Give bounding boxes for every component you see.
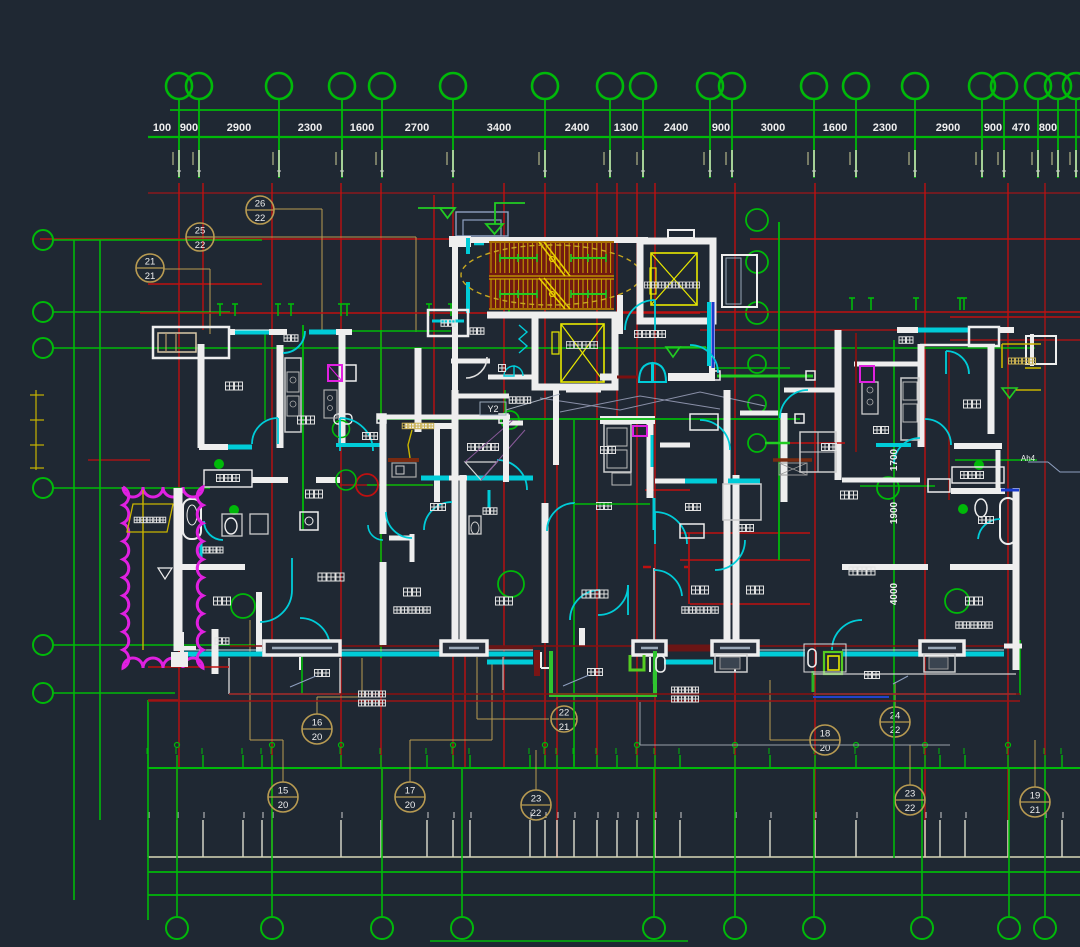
svg-text:22: 22 xyxy=(890,725,901,736)
svg-text:1600: 1600 xyxy=(350,122,374,134)
svg-text:2400: 2400 xyxy=(565,122,589,134)
svg-text:24: 24 xyxy=(890,711,901,722)
svg-text:21: 21 xyxy=(145,271,156,282)
svg-text:1900: 1900 xyxy=(889,501,900,524)
svg-text:2400: 2400 xyxy=(664,122,688,134)
svg-text:22: 22 xyxy=(531,808,542,819)
svg-text:17: 17 xyxy=(405,786,416,797)
svg-text:15: 15 xyxy=(278,786,289,797)
svg-text:800: 800 xyxy=(1039,122,1057,134)
svg-text:1700: 1700 xyxy=(889,448,900,471)
svg-text:23: 23 xyxy=(531,794,542,805)
svg-text:23: 23 xyxy=(905,789,916,800)
svg-text:22: 22 xyxy=(195,240,206,251)
svg-text:20: 20 xyxy=(405,800,416,811)
svg-text:21: 21 xyxy=(559,722,570,733)
svg-text:100: 100 xyxy=(153,122,171,134)
svg-text:21: 21 xyxy=(1030,805,1041,816)
svg-text:2900: 2900 xyxy=(936,122,960,134)
svg-text:2900: 2900 xyxy=(227,122,251,134)
svg-text:20: 20 xyxy=(312,732,323,743)
svg-text:2300: 2300 xyxy=(873,122,897,134)
svg-text:3400: 3400 xyxy=(487,122,511,134)
svg-text:22: 22 xyxy=(255,213,266,224)
svg-text:2300: 2300 xyxy=(298,122,322,134)
svg-text:16: 16 xyxy=(312,718,323,729)
svg-text:3000: 3000 xyxy=(761,122,785,134)
svg-text:900: 900 xyxy=(984,122,1002,134)
svg-text:19: 19 xyxy=(1030,791,1041,802)
svg-text:21: 21 xyxy=(145,257,156,268)
svg-text:22: 22 xyxy=(559,708,570,719)
svg-text:2700: 2700 xyxy=(405,122,429,134)
svg-text:900: 900 xyxy=(712,122,730,134)
svg-text:26: 26 xyxy=(255,199,266,210)
svg-text:18: 18 xyxy=(820,729,831,740)
svg-text:1300: 1300 xyxy=(614,122,638,134)
svg-text:4000: 4000 xyxy=(889,582,900,605)
svg-text:Y2: Y2 xyxy=(487,404,498,414)
svg-text:25: 25 xyxy=(195,226,206,237)
svg-text:1600: 1600 xyxy=(823,122,847,134)
svg-text:20: 20 xyxy=(278,800,289,811)
svg-text:900: 900 xyxy=(180,122,198,134)
svg-text:22: 22 xyxy=(905,803,916,814)
svg-text:470: 470 xyxy=(1012,122,1030,134)
